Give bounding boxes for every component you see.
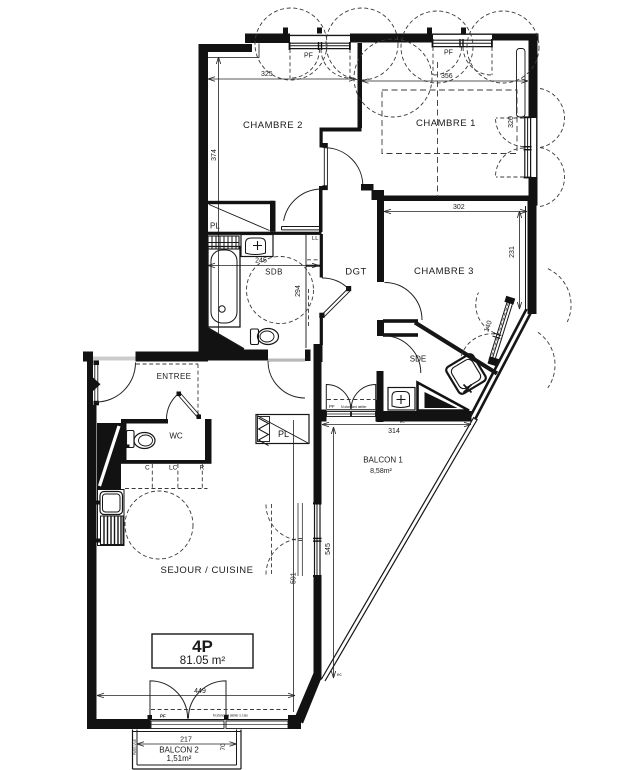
svg-text:C: C	[145, 465, 150, 472]
svg-text:320: 320	[508, 116, 515, 128]
svg-text:M.standard atelier: M.standard atelier	[341, 405, 367, 409]
svg-text:374: 374	[211, 149, 218, 161]
svg-text:356: 356	[441, 73, 453, 80]
svg-text:ENTREE: ENTREE	[157, 372, 192, 381]
svg-text:4P: 4P	[192, 637, 213, 656]
svg-text:WC: WC	[169, 432, 183, 441]
svg-text:PF: PF	[329, 404, 335, 409]
svg-text:SDE: SDE	[410, 355, 426, 364]
svg-text:302: 302	[453, 204, 465, 211]
svg-text:LC: LC	[169, 465, 178, 472]
svg-text:325: 325	[261, 71, 273, 78]
svg-text:545: 545	[325, 543, 332, 555]
svg-text:231: 231	[509, 246, 516, 258]
svg-text:PF: PF	[444, 50, 453, 57]
svg-text:8,58m²: 8,58m²	[370, 468, 392, 475]
svg-text:PARE-VUE: PARE-VUE	[133, 739, 137, 755]
svg-text:M.standard atelier s.t.alu: M.standard atelier s.t.alu	[213, 714, 248, 718]
svg-text:SDB: SDB	[265, 268, 283, 277]
svg-text:BALCON 1: BALCON 1	[363, 456, 403, 465]
svg-text:81.05 m²: 81.05 m²	[180, 655, 226, 667]
svg-text:591: 591	[291, 572, 298, 584]
svg-text:PL: PL	[210, 222, 220, 231]
svg-text:DGT: DGT	[345, 267, 367, 278]
svg-text:CHAMBRE 1: CHAMBRE 1	[416, 118, 476, 129]
svg-text:PL: PL	[278, 429, 289, 439]
svg-text:70: 70	[220, 743, 227, 751]
svg-text:314: 314	[388, 428, 400, 435]
svg-text:PF: PF	[160, 714, 166, 719]
svg-text:ec: ec	[337, 672, 343, 677]
svg-text:1,51m²: 1,51m²	[167, 754, 192, 763]
svg-text:PF: PF	[304, 53, 313, 60]
svg-text:ec: ec	[400, 419, 406, 424]
svg-text:449: 449	[194, 688, 206, 695]
svg-text:LL: LL	[312, 236, 319, 242]
svg-text:245: 245	[255, 258, 267, 265]
svg-text:294: 294	[295, 285, 302, 297]
svg-text:CHAMBRE 2: CHAMBRE 2	[243, 120, 303, 131]
svg-text:SEJOUR / CUISINE: SEJOUR / CUISINE	[161, 565, 254, 576]
svg-text:CHAMBRE 3: CHAMBRE 3	[414, 266, 474, 277]
svg-text:217: 217	[180, 737, 192, 744]
